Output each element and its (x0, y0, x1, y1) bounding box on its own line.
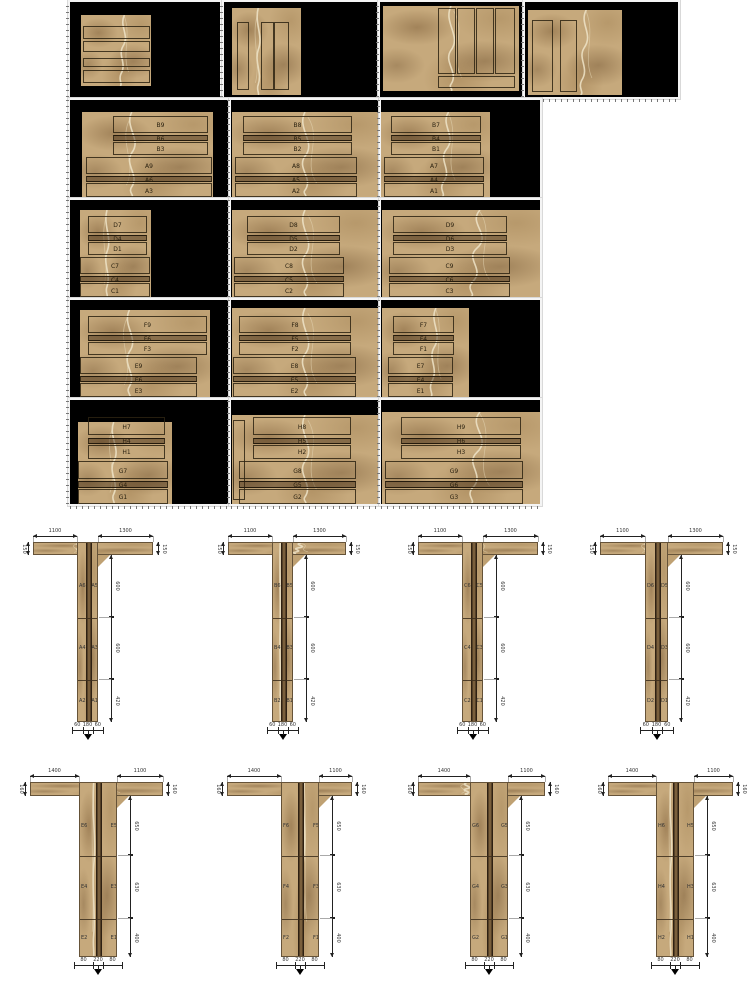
cut-strip: A3 (86, 183, 212, 197)
cut-strip: B7 (391, 116, 481, 133)
slab-panel: H7H4H1G7G4G1 (70, 400, 229, 504)
cut-strip (83, 70, 150, 83)
stem-piece-label: H6 (658, 824, 665, 829)
segment-divider-line (463, 618, 483, 619)
cut-piece-label: D8 (289, 222, 297, 229)
cut-strip: C9 (389, 257, 510, 274)
vein-branch-path (461, 784, 465, 793)
dimension-value: 150 (216, 544, 221, 554)
cut-strip: G4 (78, 481, 168, 487)
cut-strip (438, 76, 515, 88)
cut-strip: G7 (78, 461, 168, 479)
dimension-tick (699, 962, 700, 969)
dimension-value: 1300 (504, 529, 517, 534)
dimension-value: 160 (360, 784, 365, 794)
cut-strip: E5 (233, 376, 356, 382)
segment-divider-line (273, 680, 293, 681)
dimension-line (707, 796, 708, 957)
cut-piece-label: F8 (291, 322, 298, 329)
cut-strip: C4 (80, 276, 150, 282)
slab-panel: H8H5H2G8G5G2 (231, 400, 379, 504)
panel-ruler-left (377, 400, 380, 504)
dimension-value: 160 (406, 784, 411, 794)
dimension-arrowhead-icon (109, 555, 113, 559)
segment-dimension-value: 630 (710, 882, 715, 892)
stem-piece-label: A1 (91, 699, 98, 704)
dimension-tick (468, 727, 469, 734)
cut-strip: D1 (88, 242, 147, 255)
bottom-dimension-value: 60 (74, 723, 80, 728)
cut-strip: A6 (86, 176, 212, 182)
dimension-arrowhead-icon (277, 774, 281, 778)
dimension-tick (72, 727, 73, 734)
dimension-tick (465, 962, 466, 969)
segment-dimension-value: 600 (499, 581, 504, 591)
vein-branch-path (255, 17, 257, 83)
cut-piece-label: F3 (144, 346, 151, 353)
dimension-value: 1100 (520, 769, 533, 774)
dimension-line (117, 776, 163, 777)
dimension-arrowhead-icon (293, 534, 297, 538)
cut-piece-label: A7 (430, 163, 438, 170)
section-marker-line (489, 966, 490, 970)
slab-panel: B9B6B3A9A6A3 (70, 100, 229, 197)
dimension-arrowhead-icon (227, 774, 231, 778)
segment-dimension-value: 630 (133, 882, 138, 892)
extension-line (294, 617, 306, 618)
dimension-value: 1400 (48, 769, 61, 774)
dimension-value: 160 (741, 784, 746, 794)
stem-groove (470, 543, 478, 722)
stem-piece-label: H1 (687, 936, 694, 941)
bottom-dimension-value: 220 (484, 958, 494, 963)
dimension-value: 160 (215, 784, 220, 794)
dimension-arrowhead-icon (668, 534, 672, 538)
cut-piece-label: D3 (446, 246, 454, 253)
extension-line (733, 776, 734, 782)
dimension-arrowhead-icon (156, 542, 160, 546)
extension-line (163, 776, 164, 782)
stem-piece-label: A5 (91, 584, 98, 589)
cut-strip: D8 (247, 216, 340, 233)
extension-line (656, 776, 657, 782)
dimension-tick (103, 962, 104, 969)
column-stem: D6D5D4D3D2D1 (645, 542, 668, 722)
dimension-tick (680, 962, 681, 969)
dimension-arrowhead-icon (694, 774, 698, 778)
extension-line (669, 617, 681, 618)
extension-line (470, 776, 471, 782)
cut-strip: B5 (243, 135, 352, 141)
cut-strip (476, 8, 494, 74)
bottom-dimension-value: 80 (282, 958, 288, 963)
dimension-line (668, 536, 723, 537)
extension-line (509, 855, 521, 856)
segment-dimension-value: 600 (309, 643, 314, 653)
cut-strip: B6 (113, 135, 208, 141)
stem-piece-label: G2 (472, 936, 479, 941)
stem-piece-label: E6 (81, 824, 87, 829)
cut-strip (532, 20, 553, 92)
stem-piece-label: F1 (313, 936, 319, 941)
stem-piece-label: A6 (79, 584, 86, 589)
dimension-line (98, 536, 153, 537)
cut-strip: A9 (86, 157, 212, 174)
dimension-tick (651, 962, 652, 969)
dimension-arrowhead-icon (719, 534, 723, 538)
dimension-line (521, 796, 522, 957)
stem-piece-label: F4 (283, 885, 289, 890)
extension-line (484, 679, 496, 680)
cut-piece-label: A8 (292, 163, 300, 170)
dimension-arrowhead-icon (348, 774, 352, 778)
panel-ruler-left (66, 2, 69, 97)
dimension-tick (513, 962, 514, 969)
cut-piece-label: C1 (111, 288, 119, 295)
extension-line (695, 918, 707, 919)
dimension-arrowhead-icon (159, 774, 163, 778)
dimension-value: 1400 (248, 769, 261, 774)
dimension-arrowhead-icon (541, 542, 545, 546)
bottom-dimension-value: 180 (652, 723, 662, 728)
cut-strip: D3 (393, 242, 507, 255)
extension-line (294, 679, 306, 680)
cut-piece-label: H2 (298, 449, 306, 456)
dimension-arrowhead-icon (268, 534, 272, 538)
column-stem: C6C5C4C3C2C1 (462, 542, 483, 722)
dimension-line (228, 536, 272, 537)
vein-path (464, 783, 469, 795)
stem-piece-label: D3 (661, 646, 668, 651)
cut-piece-label: D9 (446, 222, 454, 229)
segment-divider-line (471, 919, 508, 920)
bottom-dimension-value: 60 (95, 723, 101, 728)
cut-strip: E2 (233, 383, 356, 397)
cut-strip: E3 (80, 383, 197, 397)
segment-dimension-value: 420 (309, 696, 314, 706)
dimension-arrowhead-icon (548, 782, 552, 786)
cut-strip (495, 8, 515, 74)
stem-piece-label: B2 (274, 699, 281, 704)
dimension-arrowhead-icon (458, 534, 462, 538)
cut-piece-label: B8 (294, 122, 302, 129)
dimension-arrowhead-icon (304, 555, 308, 559)
segment-dimension-value: 650 (133, 821, 138, 831)
cut-strip: B3 (113, 142, 208, 155)
dimension-value: 150 (21, 544, 26, 554)
cut-strip: C1 (80, 283, 150, 297)
extension-line (272, 536, 273, 542)
bottom-dimension-value: 80 (80, 958, 86, 963)
slab-panel: D8D5D2C8C5C2 (231, 200, 379, 297)
stem-piece-label: D6 (647, 584, 654, 589)
stem-piece-label: D4 (647, 646, 654, 651)
dimension-arrowhead-icon (73, 534, 77, 538)
dimension-arrowhead-icon (641, 534, 645, 538)
panel-ruler-left (227, 100, 230, 197)
cut-piece-label: E3 (135, 388, 143, 395)
dimension-value: 1400 (626, 769, 639, 774)
dimension-arrowhead-icon (705, 953, 709, 957)
column-stem: E6E5E4E3E2E1 (79, 782, 117, 957)
cut-strip: B8 (243, 116, 352, 133)
extension-line (77, 536, 78, 542)
cut-strip: C3 (389, 283, 510, 297)
panel-ruler-left (377, 200, 380, 297)
extension-line (118, 918, 130, 919)
stem-piece-label: G1 (501, 936, 508, 941)
stem-piece-label: C1 (476, 699, 483, 704)
cut-strip (261, 22, 274, 90)
cut-strip: F2 (239, 342, 351, 355)
segment-dimension-value: 630 (524, 882, 529, 892)
cut-strip: F4 (393, 335, 454, 341)
stem-groove (280, 543, 288, 722)
stem-piece-label: C6 (464, 584, 471, 589)
vein-branch-path (586, 12, 592, 78)
cut-piece-label: B2 (294, 146, 302, 153)
cut-strip: C6 (389, 276, 510, 282)
stem-piece-label: H4 (658, 885, 665, 890)
segment-dimension-value: 400 (524, 933, 529, 943)
dimension-line (306, 555, 307, 722)
stem-groove (654, 543, 662, 722)
extension-line (352, 776, 353, 782)
bottom-dimension-value: 60 (290, 723, 296, 728)
stem-groove (85, 543, 93, 722)
segment-dimension-value: 420 (114, 696, 119, 706)
segment-divider-line (282, 919, 319, 920)
section-marker-line (657, 731, 658, 735)
cut-piece-label: H7 (122, 424, 130, 431)
cut-piece-label: B7 (432, 122, 440, 129)
stem-groove (486, 783, 494, 957)
dimension-tick (640, 727, 641, 734)
dimension-arrowhead-icon (483, 534, 487, 538)
dimension-arrowhead-icon (128, 953, 132, 957)
bottom-dimension-value: 80 (311, 958, 317, 963)
cut-strip: G6 (385, 481, 523, 487)
cut-strip: H8 (253, 417, 351, 435)
extension-line (545, 776, 546, 782)
stem-piece-label: A3 (91, 646, 98, 651)
dimension-line (332, 796, 333, 957)
cut-strip: D9 (393, 216, 507, 233)
segment-dimension-value: 650 (710, 821, 715, 831)
extension-line (669, 679, 681, 680)
cut-piece-label: H3 (457, 449, 465, 456)
extension-line (320, 855, 332, 856)
slab-panel: F7F4F1E7E4E1 (381, 300, 540, 397)
dimension-arrowhead-icon (705, 796, 709, 800)
cut-piece-label: G9 (450, 468, 458, 475)
cut-strip: E7 (388, 357, 453, 374)
dimension-arrowhead-icon (508, 774, 512, 778)
cut-piece-label: E7 (417, 363, 425, 370)
dimension-tick (673, 727, 674, 734)
dimension-tick (276, 962, 277, 969)
cut-strip: H4 (88, 438, 165, 444)
bottom-dimension-value: 180 (468, 723, 478, 728)
vein-path (257, 8, 260, 95)
dimension-arrowhead-icon (418, 774, 422, 778)
cut-strip: E8 (233, 357, 356, 374)
dimension-value: 1100 (329, 769, 342, 774)
cut-strip: B9 (113, 116, 208, 133)
segment-dimension-value: 630 (335, 882, 340, 892)
cut-strip (237, 22, 249, 90)
dimension-value: 1100 (134, 769, 147, 774)
dimension-line (418, 536, 462, 537)
column-stem: A6A5A4A3A2A1 (77, 542, 98, 722)
dimension-value: 1300 (119, 529, 132, 534)
stem-piece-label: F5 (313, 824, 319, 829)
panel-ruler-left (227, 400, 230, 504)
segment-divider-line (273, 618, 293, 619)
segment-divider-line (282, 856, 319, 857)
stem-piece-label: B4 (274, 646, 281, 651)
dimension-arrowhead-icon (494, 555, 498, 559)
stem-piece-label: A4 (79, 646, 86, 651)
segment-dimension-value: 400 (710, 933, 715, 943)
segment-dimension-value: 650 (524, 821, 529, 831)
dimension-tick (457, 727, 458, 734)
cut-strip: H6 (401, 438, 521, 444)
dimension-value: 1100 (244, 529, 257, 534)
column-stem: B6B5B4B3B2B1 (272, 542, 293, 722)
stem-piece-label: A2 (79, 699, 86, 704)
stem-piece-label: G5 (501, 824, 508, 829)
cut-strip (438, 8, 456, 74)
cut-strip: E4 (388, 376, 453, 382)
stem-piece-label: D2 (647, 699, 654, 704)
dimension-tick (267, 727, 268, 734)
stem-piece-label: E1 (111, 936, 117, 941)
segment-divider-line (463, 680, 483, 681)
dimension-line (30, 776, 79, 777)
dimension-arrowhead-icon (519, 796, 523, 800)
segment-dimension-value: 400 (335, 933, 340, 943)
dimension-tick (324, 962, 325, 969)
cut-strip (457, 8, 475, 74)
dimension-value: 150 (354, 544, 359, 554)
dimension-value: 150 (161, 544, 166, 554)
column-stem: G6G5G4G3G2G1 (470, 782, 508, 957)
cut-strip: E1 (388, 383, 453, 397)
stem-piece-label: C4 (464, 646, 471, 651)
stem-piece-label: E5 (111, 824, 117, 829)
stem-piece-label: B3 (286, 646, 293, 651)
stem-piece-label: C5 (476, 584, 483, 589)
cut-strip: A5 (235, 176, 357, 182)
bottom-dimension-value: 180 (83, 723, 93, 728)
slab-panel (224, 2, 377, 97)
cut-piece-label: G1 (119, 494, 127, 501)
extension-line (99, 617, 111, 618)
stem-piece-label: D5 (661, 584, 668, 589)
extension-line (79, 776, 80, 782)
cut-piece-label: G3 (450, 494, 458, 501)
panel-ruler-left (377, 100, 380, 197)
dimension-value: 160 (18, 784, 23, 794)
dimension-tick (478, 727, 479, 734)
panel-ruler-left (377, 300, 380, 397)
bottom-dimension-value: 80 (109, 958, 115, 963)
segment-divider-line (646, 618, 668, 619)
dimension-arrowhead-icon (330, 796, 334, 800)
dimension-tick (93, 727, 94, 734)
extension-line (645, 536, 646, 542)
panel-ruler-bottom (231, 506, 379, 509)
column-stem: H6H5H4H3H2H1 (656, 782, 694, 957)
section-marker-line (283, 731, 284, 735)
cut-piece-label: B1 (432, 146, 440, 153)
section-marker-line (300, 966, 301, 970)
stem-groove (672, 783, 680, 957)
stem-piece-label: G3 (501, 885, 508, 890)
segment-divider-line (78, 680, 98, 681)
dimension-arrowhead-icon (736, 782, 740, 786)
dimension-arrowhead-icon (608, 774, 612, 778)
dimension-arrowhead-icon (149, 534, 153, 538)
cut-piece-label: G7 (119, 468, 127, 475)
dimension-tick (488, 727, 489, 734)
dimension-value: 150 (731, 544, 736, 554)
dimension-line (608, 776, 656, 777)
cut-strip: A7 (384, 157, 484, 174)
cut-strip: H7 (88, 417, 165, 435)
cut-strip (83, 41, 150, 52)
segment-divider-line (80, 856, 117, 857)
extension-line (484, 617, 496, 618)
stem-piece-label: H5 (687, 824, 694, 829)
stem-piece-label: F3 (313, 885, 319, 890)
dimension-arrowhead-icon (679, 718, 683, 722)
dimension-tick (670, 962, 671, 969)
dimension-tick (484, 962, 485, 969)
cut-strip: C2 (234, 283, 344, 297)
bottom-dimension-value: 80 (686, 958, 692, 963)
panel-ruler-bottom (525, 99, 678, 102)
dimension-line (483, 536, 538, 537)
dimension-arrowhead-icon (726, 551, 730, 555)
dimension-tick (662, 727, 663, 734)
cut-piece-label: F9 (144, 322, 151, 329)
dimension-arrowhead-icon (355, 782, 359, 786)
cut-strip: G3 (385, 489, 523, 504)
panel-ruler-bottom (381, 506, 540, 509)
dimension-arrowhead-icon (330, 953, 334, 957)
cut-strip (83, 58, 150, 67)
stone-cutting-layout-drawing: B9B6B3A9A6A3B8B5B2A8A5A2B7B4B1A7A4A1D7D4… (0, 0, 750, 1000)
slab-panel: D9D6D3C9C6C3 (381, 200, 540, 297)
cut-piece-label: F1 (420, 346, 427, 353)
panel-ruler-left (376, 2, 379, 97)
stem-piece-label: G6 (472, 824, 479, 829)
segment-dimension-value: 600 (309, 581, 314, 591)
dimension-value: 1100 (616, 529, 629, 534)
cut-piece-label: F2 (291, 346, 298, 353)
panel-ruler-left (521, 2, 524, 97)
dimension-value: 1400 (438, 769, 451, 774)
dimension-arrowhead-icon (156, 551, 160, 555)
dimension-arrowhead-icon (98, 534, 102, 538)
dimension-value: 1100 (49, 529, 62, 534)
section-marker-line (88, 731, 89, 735)
dimension-arrowhead-icon (349, 551, 353, 555)
dimension-arrowhead-icon (534, 534, 538, 538)
cut-strip: F8 (239, 316, 351, 333)
